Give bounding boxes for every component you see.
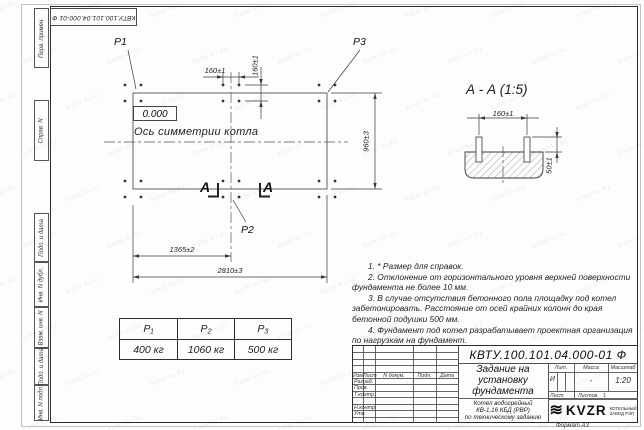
divider — [557, 372, 558, 391]
section-dim-50: 50±1 — [545, 146, 554, 186]
cut-letter-left: А — [200, 179, 210, 195]
divider — [548, 372, 638, 373]
load-table-value-p2: 1060 кг — [177, 339, 234, 359]
col-izm: Изм. — [353, 373, 363, 379]
section-bolt-right — [524, 137, 530, 162]
divider — [353, 359, 458, 360]
signature-grid: Изм. Лист N докум. Подп. Дата Разраб. Пр… — [353, 346, 458, 423]
product-line: КВ-1,16 КБД (РВР) — [476, 407, 530, 414]
logo-subtitle-line: ЗАВОД РЭП — [610, 411, 637, 416]
logo-subtitle: КОТЕЛЬНЫЙ ЗАВОД РЭП — [610, 406, 637, 416]
level-mark-box: 0.000 — [133, 106, 177, 121]
document-title: Задание на установку фундамента — [458, 363, 548, 398]
section-bolt-left — [476, 137, 482, 162]
section-view — [465, 137, 543, 178]
anchor-bolts — [124, 84, 337, 199]
load-table-header-p1: P₁ — [120, 319, 177, 339]
note-3: 3. В случае отсутствия бетонного пола пл… — [352, 293, 640, 325]
product-description: Котел водогрейный КВ-1,16 КБД (РВР) по т… — [458, 398, 548, 423]
load-point-label-p2: P2 — [241, 224, 254, 236]
mass-value: - — [574, 376, 608, 385]
col-podp: Подп. — [413, 373, 436, 379]
product-line: по техническому заданию — [465, 414, 541, 421]
scale-value: 1:20 — [608, 376, 638, 385]
dim-960: 960±3 — [362, 122, 371, 162]
dim-1365: 1365±2 — [164, 245, 200, 254]
load-table-value-p1: 400 кг — [120, 339, 177, 359]
document-title-line: установку — [478, 375, 528, 386]
product-line: Котел водогрейный — [474, 400, 533, 407]
divider — [353, 352, 458, 353]
note-4: 4. Фундамент под котел разрабатывает про… — [352, 325, 640, 346]
dim-160-vertical: 160±1 — [251, 46, 260, 86]
document-title-line: фундамента — [472, 386, 533, 397]
row-prov: Пров. — [354, 385, 368, 391]
lit-value: И — [548, 376, 557, 383]
col-dokum: N докум. — [375, 373, 413, 379]
scale-label: Масштаб — [608, 365, 638, 371]
mass-label: Масса — [574, 365, 608, 371]
load-table-header-p2: P₂ — [177, 319, 234, 339]
divider — [565, 372, 566, 391]
lit-label: Лит. — [548, 365, 574, 371]
center-lines — [104, 72, 503, 262]
section-cut-marks — [208, 183, 270, 197]
row-nkontr: Н.контр. — [354, 405, 376, 411]
note-1: 1. * Размер для справок. — [352, 261, 640, 272]
load-table: P₁ P₂ P₃ 400 кг 1060 кг 500 кг — [119, 318, 292, 360]
note-2: 2. Отклонение от горизонтального уровня … — [352, 272, 640, 293]
logo-text: KVZR — [566, 403, 607, 418]
designation: КВТУ.100.101.04.000-01 Ф — [458, 346, 638, 363]
col-list: Лист — [363, 373, 375, 379]
divider — [353, 417, 458, 418]
cut-letter-right: А — [263, 179, 273, 195]
format-note: Формат А3 — [556, 423, 589, 429]
section-dim-160: 160±1 — [485, 109, 521, 118]
title-block: КВТУ.100.101.04.000-01 Ф Изм. Лист N до — [352, 345, 637, 422]
logo-waves-icon: ≋ — [549, 403, 562, 419]
col-data: Дата — [436, 373, 458, 379]
notes-block: 1. * Размер для справок. 2. Отклонение о… — [352, 261, 640, 346]
load-point-label-p3: P3 — [353, 36, 366, 48]
document-title-line: Задание на — [476, 364, 529, 375]
company-logo: ≋ KVZR КОТЕЛЬНЫЙ ЗАВОД РЭП — [548, 399, 638, 424]
row-tkontr: Т.контр. — [354, 392, 375, 398]
load-point-label-p1: P1 — [114, 36, 127, 48]
drawing-sheet: kotel-kv.kzkotel-kv.kzkotel-kv.kzkotel-k… — [0, 0, 644, 430]
load-table-header-p3: P₃ — [234, 319, 291, 339]
axis-label: Ось симметрии котла — [134, 126, 258, 138]
row-utv: Утв. — [354, 411, 366, 417]
section-title: А - А (1:5) — [466, 82, 528, 97]
dim-160-horizontal: 160±1 — [197, 66, 233, 75]
divider — [353, 365, 458, 366]
dim-2810: 2810±3 — [212, 266, 248, 275]
load-table-value-p3: 500 кг — [234, 339, 291, 359]
